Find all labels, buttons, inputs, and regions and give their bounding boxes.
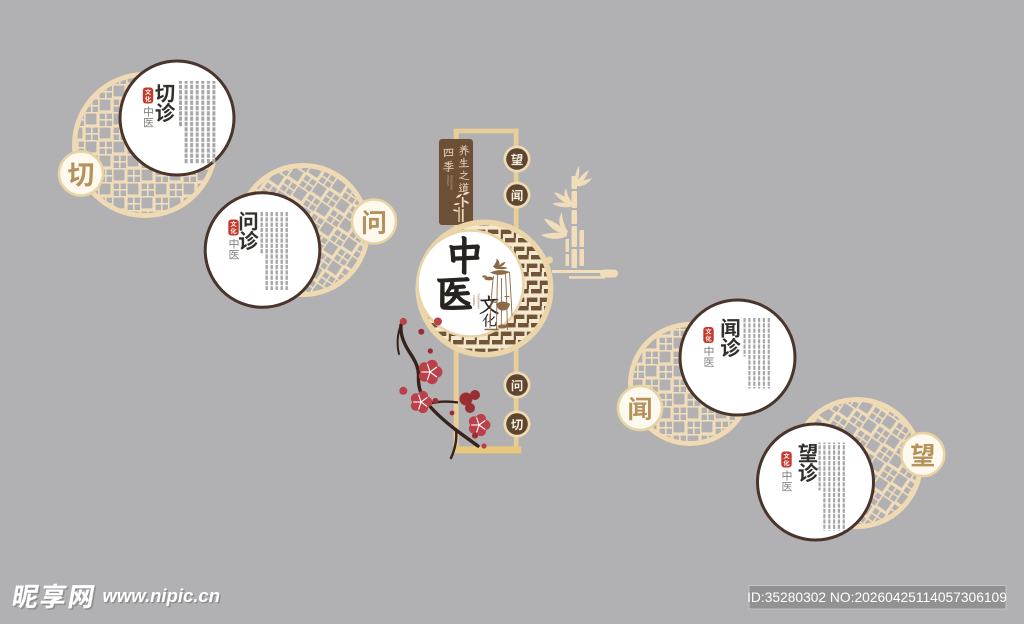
svg-text:ID:35280302 NO:202604251140573: ID:35280302 NO:20260425114057306109 [747,590,1007,605]
svg-text:YANGSHENG: YANGSHENG [450,175,453,190]
svg-text:ZHONGYI: ZHONGYI [446,175,449,186]
svg-text:ZHONG: ZHONG [472,295,476,306]
svg-text:www.nipic.cn: www.nipic.cn [103,585,221,606]
svg-text:YIWENHUA: YIWENHUA [477,293,481,309]
